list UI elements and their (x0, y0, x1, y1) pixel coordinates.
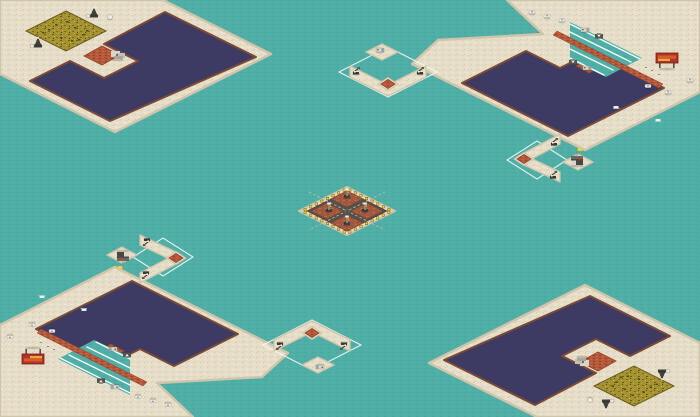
perimeter-light (310, 206, 312, 208)
perimeter-light (382, 206, 384, 208)
perimeter-light (354, 228, 356, 230)
person-unit[interactable] (645, 67, 647, 70)
truck-unit[interactable] (583, 66, 592, 71)
perimeter-light (360, 225, 362, 227)
perimeter-light (349, 189, 351, 191)
perimeter-light (343, 231, 345, 233)
car-unit[interactable] (558, 18, 565, 23)
perimeter-light (376, 203, 378, 205)
perimeter-light (376, 217, 378, 219)
perimeter-light (304, 211, 306, 213)
perimeter-light (360, 194, 362, 196)
tank-unit[interactable] (107, 15, 112, 21)
perimeter-light (310, 214, 312, 216)
car-unit[interactable] (543, 14, 550, 19)
perimeter-light (315, 217, 317, 219)
perimeter-light (332, 194, 334, 196)
car-unit[interactable] (686, 78, 693, 83)
perimeter-light (337, 228, 339, 230)
perimeter-light (371, 220, 373, 222)
perimeter-light (321, 220, 323, 222)
perimeter-light (382, 214, 384, 216)
perimeter-light (337, 192, 339, 194)
map-canvas[interactable] (0, 0, 700, 417)
central-oil-platform[interactable] (299, 187, 395, 235)
car-unit[interactable] (664, 90, 671, 95)
person-unit[interactable] (651, 70, 653, 73)
person-unit[interactable] (658, 74, 660, 77)
perimeter-light (371, 200, 373, 202)
car-unit[interactable] (644, 84, 651, 89)
perimeter-light (349, 231, 351, 233)
perimeter-light (326, 222, 328, 224)
perimeter-light (315, 203, 317, 205)
perimeter-light (304, 208, 306, 210)
perimeter-light (343, 189, 345, 191)
perimeter-light (388, 208, 390, 210)
perimeter-light (326, 197, 328, 199)
perimeter-light (388, 211, 390, 213)
perimeter-light (332, 225, 334, 227)
perimeter-light (354, 192, 356, 194)
truck-unit[interactable] (376, 48, 385, 53)
game-viewport[interactable] (0, 0, 700, 417)
truck-unit[interactable] (581, 28, 590, 33)
perimeter-light (365, 197, 367, 199)
car-unit[interactable] (528, 10, 535, 15)
perimeter-light (321, 200, 323, 202)
perimeter-light (365, 222, 367, 224)
